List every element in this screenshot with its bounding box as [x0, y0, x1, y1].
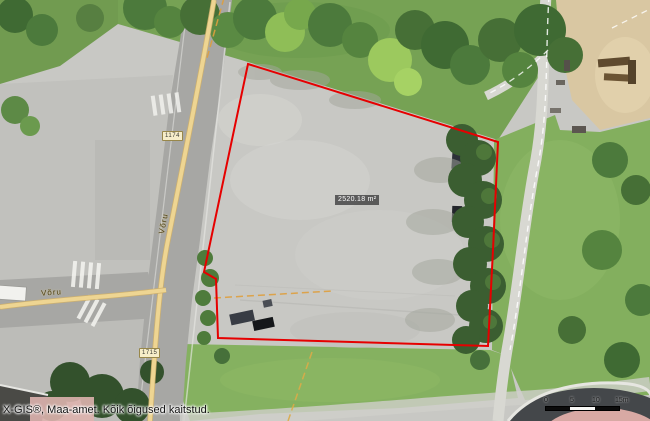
- map-viewport[interactable]: 2520.18 m² 1174 1715 Võru Võru X-GIS®, M…: [0, 0, 650, 421]
- road-number-badge-top: 1174: [162, 131, 183, 141]
- scale-label-15: 15m: [615, 397, 629, 404]
- scale-bar-segments: [545, 406, 620, 411]
- scale-label-5: 5: [570, 397, 574, 404]
- road-number-badge-bottom: 1715: [139, 348, 160, 358]
- area-measurement-label: 2520.18 m²: [335, 195, 379, 205]
- map-attribution: X-GIS®, Maa-amet. Kõik õigused kaitstud.: [3, 404, 210, 416]
- scale-bar: 0 5 10 15m: [541, 397, 645, 417]
- scale-label-10: 10: [592, 397, 600, 404]
- street-name-label-horizontal: Võru: [41, 287, 62, 297]
- aerial-imagery: [0, 0, 650, 421]
- scale-label-0: 0: [544, 397, 548, 404]
